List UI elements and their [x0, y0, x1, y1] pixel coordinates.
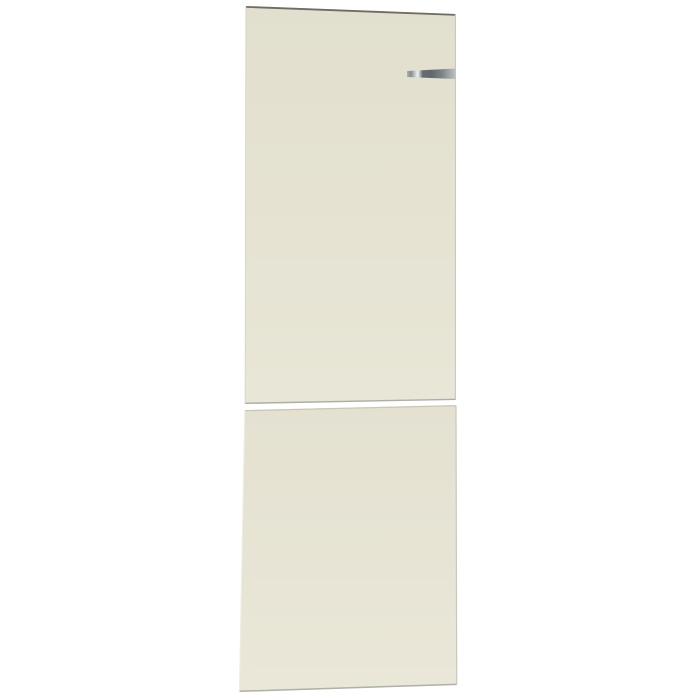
lower-door-right-edge — [456, 406, 457, 685]
lower-door-panel — [239, 405, 457, 692]
refrigerator-door-panels-photo — [0, 0, 700, 700]
product-photo-canvas — [0, 0, 700, 700]
upper-door-panel — [245, 6, 456, 404]
